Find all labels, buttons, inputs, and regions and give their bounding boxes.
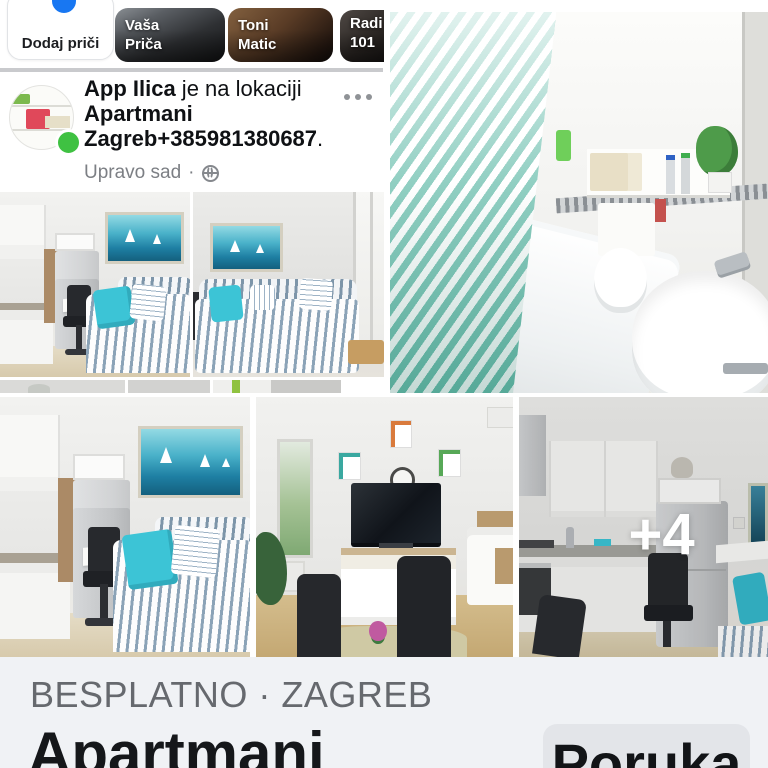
photo-detail (655, 199, 666, 222)
photo-detail (556, 130, 571, 160)
meta-separator: · (188, 162, 194, 184)
story-card-radio-101[interactable]: Radi 101 (340, 10, 384, 62)
stories-row: Dodaj priči Vaša Priča Toni Matic Radi 1… (0, 0, 384, 66)
photo-detail (125, 229, 135, 242)
photo-detail (230, 240, 240, 252)
add-story-plus-icon[interactable] (49, 0, 79, 16)
photo-detail (696, 126, 738, 176)
photo-detail (681, 153, 690, 194)
photo-detail (76, 325, 82, 351)
photo-detail (232, 380, 240, 393)
online-status-icon (55, 129, 82, 156)
photo-detail (487, 407, 513, 427)
story-label: Vaša Priča (125, 16, 162, 54)
photo-detail (632, 271, 768, 393)
photo-detail (222, 458, 230, 467)
add-story-card[interactable]: Dodaj priči (7, 0, 114, 60)
photo-detail (92, 286, 135, 330)
photo-bathroom[interactable] (390, 12, 768, 393)
photo-detail (438, 449, 461, 477)
listing-title: Apartmani (28, 719, 325, 768)
photo-detail (250, 285, 275, 311)
avatar-detail (11, 94, 30, 104)
photo-detail (271, 380, 341, 393)
photo-sliver[interactable] (213, 380, 341, 393)
photo-detail (100, 584, 108, 620)
photo-detail (0, 205, 46, 259)
globe-audience-icon (202, 165, 219, 182)
photo-detail (160, 447, 172, 463)
post-connector-text: je na lokaciji (176, 76, 302, 101)
photo-living-room-2[interactable] (193, 192, 384, 377)
photo-detail (55, 233, 95, 252)
photo-detail (210, 223, 283, 271)
photo-detail (138, 426, 243, 499)
post-title: App Ilica je na lokaciji Apartmani Zagre… (84, 76, 350, 151)
photo-detail (129, 283, 167, 322)
photo-detail (105, 212, 185, 264)
facebook-app-screen: Dodaj priči Vaša Priča Toni Matic Radi 1… (0, 0, 768, 768)
photo-detail (397, 556, 451, 657)
story-label: Radi 101 (350, 14, 383, 52)
story-label: Toni Matic (238, 16, 276, 54)
message-button[interactable]: Poruka (543, 724, 750, 768)
story-card-vasa-prica[interactable]: Vaša Priča (115, 8, 225, 62)
author-name[interactable]: App Ilica (84, 76, 176, 101)
story-card-toni-matic[interactable]: Toni Matic (228, 8, 333, 62)
photo-detail (299, 278, 334, 312)
photo-detail (351, 483, 441, 547)
photo-detail (297, 574, 341, 657)
photo-sliver[interactable] (0, 380, 125, 393)
photo-detail (208, 285, 244, 323)
photo-detail (153, 234, 161, 244)
photo-detail (0, 415, 60, 490)
photo-kitchen-more[interactable]: +4 (519, 397, 768, 657)
photo-detail (256, 244, 264, 253)
photo-detail (348, 340, 384, 364)
avatar-detail (10, 105, 73, 107)
photo-detail (170, 525, 220, 579)
photo-detail (723, 363, 768, 374)
post-suffix: . (317, 126, 323, 151)
photo-detail (594, 248, 647, 313)
photo-detail (590, 153, 628, 191)
photo-detail (28, 384, 50, 393)
photo-living-room-3[interactable] (0, 397, 250, 657)
add-story-label: Dodaj priči (8, 35, 113, 52)
post-meta: Upravo sad · (84, 162, 219, 184)
photo-detail (277, 439, 313, 559)
message-button-label: Poruka (543, 736, 750, 768)
listing-category: BESPLATNO · ZAGREB (30, 674, 432, 716)
photo-detail (666, 155, 675, 194)
timestamp[interactable]: Upravo sad (84, 162, 181, 184)
photo-detail (390, 420, 413, 448)
photo-detail (200, 454, 210, 467)
photo-detail (379, 543, 412, 548)
photo-detail (121, 529, 178, 590)
photo-detail (495, 548, 513, 584)
more-photos-count[interactable]: +4 (629, 501, 695, 568)
post-header: App Ilica je na lokaciji Apartmani Zagre… (0, 72, 384, 192)
link-preview-footer[interactable]: BESPLATNO · ZAGREB Apartmani Poruka (0, 657, 768, 768)
avatar-detail (45, 116, 70, 127)
location-link[interactable]: Apartmani Zagreb+385981380687 (84, 101, 317, 151)
photo-detail (338, 452, 361, 480)
photo-detail (708, 172, 733, 193)
photo-living-room-1[interactable] (0, 192, 190, 377)
photo-sliver[interactable] (128, 380, 210, 393)
photo-tv-room[interactable] (256, 397, 513, 657)
more-options-icon[interactable] (344, 94, 372, 100)
photo-detail (73, 454, 126, 480)
